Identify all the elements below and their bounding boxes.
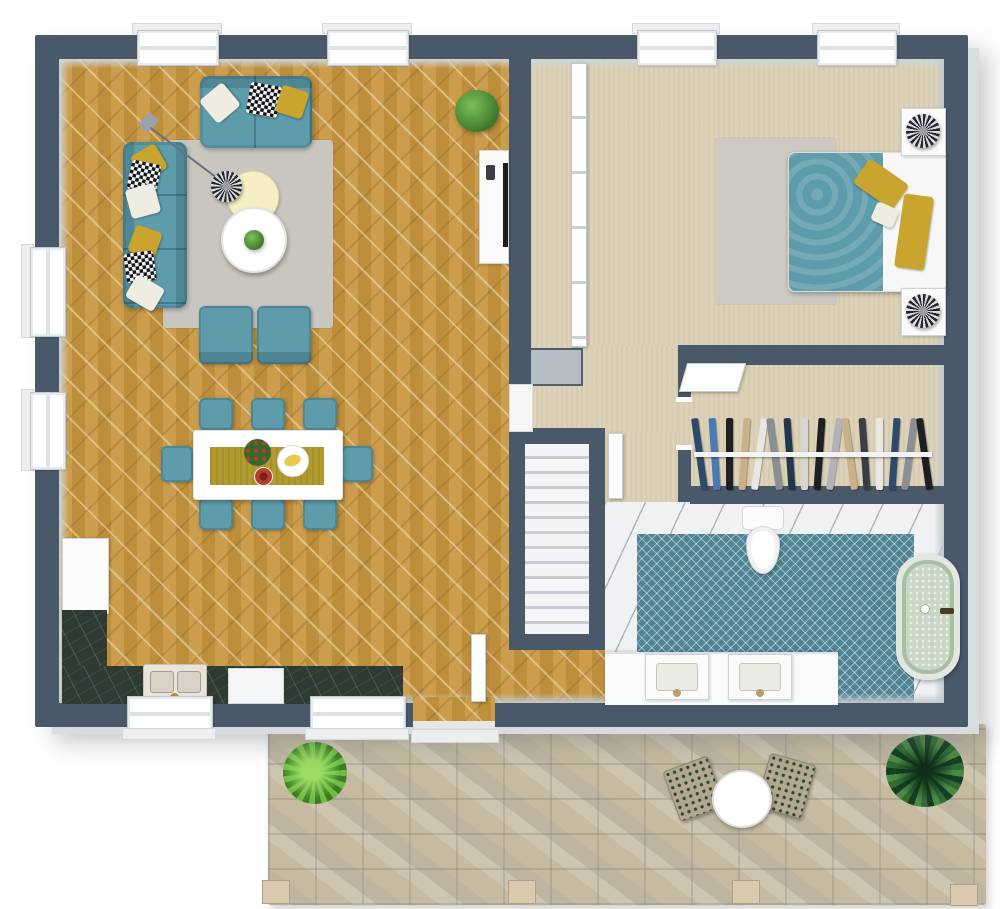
window[interactable]	[818, 31, 896, 65]
kitchen-tall-cabinet[interactable]	[62, 538, 109, 614]
tv-remote	[486, 165, 495, 180]
table-plant	[244, 230, 264, 250]
toilet-bowl	[746, 526, 780, 574]
patio-table[interactable]	[712, 770, 772, 828]
living-room-plant[interactable]	[455, 90, 499, 132]
basin	[656, 663, 698, 691]
closet-door-open[interactable]	[679, 363, 746, 392]
dining-table[interactable]	[193, 430, 343, 500]
tub-drain	[920, 604, 930, 614]
fruit-bowl	[254, 467, 273, 486]
window[interactable]	[31, 393, 65, 469]
vanity-sink[interactable]	[728, 654, 792, 700]
sink-basin	[177, 671, 201, 693]
vanity-sink[interactable]	[645, 654, 709, 700]
door-jamb	[676, 445, 692, 450]
tv-console[interactable]	[479, 150, 509, 264]
living-room-east-wall	[509, 59, 531, 384]
patio-post	[262, 880, 290, 904]
dining-chair[interactable]	[161, 446, 193, 482]
bed-pillow	[894, 193, 934, 270]
flower-bouquet	[244, 439, 271, 466]
table-lamp[interactable]	[906, 294, 940, 328]
bananas	[283, 453, 303, 469]
patio-floor	[268, 724, 986, 905]
window[interactable]	[138, 31, 218, 65]
patio-post	[508, 880, 536, 904]
patio-plant-spiky[interactable]	[886, 735, 964, 807]
pendant-lamp[interactable]	[211, 171, 242, 202]
vanity-faucet	[673, 689, 681, 697]
tub-faucet	[940, 608, 954, 614]
dining-chair[interactable]	[303, 398, 337, 430]
window[interactable]	[638, 31, 716, 65]
banana-plate	[277, 445, 309, 477]
window-sill	[305, 728, 409, 740]
dining-chair[interactable]	[341, 446, 373, 482]
dining-chair[interactable]	[303, 498, 337, 530]
dining-chair[interactable]	[199, 498, 233, 530]
bedroom-south-wall	[678, 345, 944, 365]
kitchen-appliance[interactable]	[228, 668, 284, 704]
entry-threshold	[413, 721, 495, 728]
sink-basin	[150, 671, 174, 693]
patio-post	[732, 880, 760, 904]
kitchen-counter-left[interactable]	[62, 610, 107, 670]
closet-rail[interactable]	[694, 452, 932, 457]
entry-step	[411, 729, 499, 743]
window[interactable]	[128, 697, 212, 731]
sofa[interactable]	[123, 142, 187, 308]
staircase[interactable]	[525, 444, 589, 634]
armchair[interactable]	[199, 306, 253, 364]
toilet[interactable]	[742, 506, 782, 574]
window[interactable]	[328, 31, 408, 65]
dining-chair[interactable]	[199, 398, 233, 430]
table-lamp[interactable]	[906, 114, 940, 148]
entry-door-open[interactable]	[471, 634, 486, 702]
bathroom-door-open[interactable]	[608, 433, 623, 499]
coffee-table[interactable]	[221, 207, 287, 273]
patio-post	[950, 884, 978, 906]
window[interactable]	[311, 697, 405, 731]
bathtub[interactable]	[896, 554, 960, 680]
dining-chair[interactable]	[251, 398, 285, 430]
window-sill	[122, 728, 216, 740]
floor-plan-canvas	[0, 0, 1000, 909]
dining-chair[interactable]	[251, 498, 285, 530]
patio-plant-fern[interactable]	[283, 742, 347, 804]
basin	[739, 663, 781, 691]
vanity-counter[interactable]	[605, 652, 838, 705]
bed[interactable]	[788, 152, 946, 292]
armchair[interactable]	[257, 306, 311, 364]
hall-door-threshold[interactable]	[509, 384, 533, 432]
door-jamb	[676, 397, 692, 402]
tv-screen	[503, 163, 508, 247]
pillow	[199, 82, 241, 124]
window[interactable]	[31, 248, 65, 336]
vanity-faucet	[756, 689, 764, 697]
loveseat[interactable]	[200, 76, 312, 148]
bedroom-partition-panels[interactable]	[571, 63, 587, 347]
